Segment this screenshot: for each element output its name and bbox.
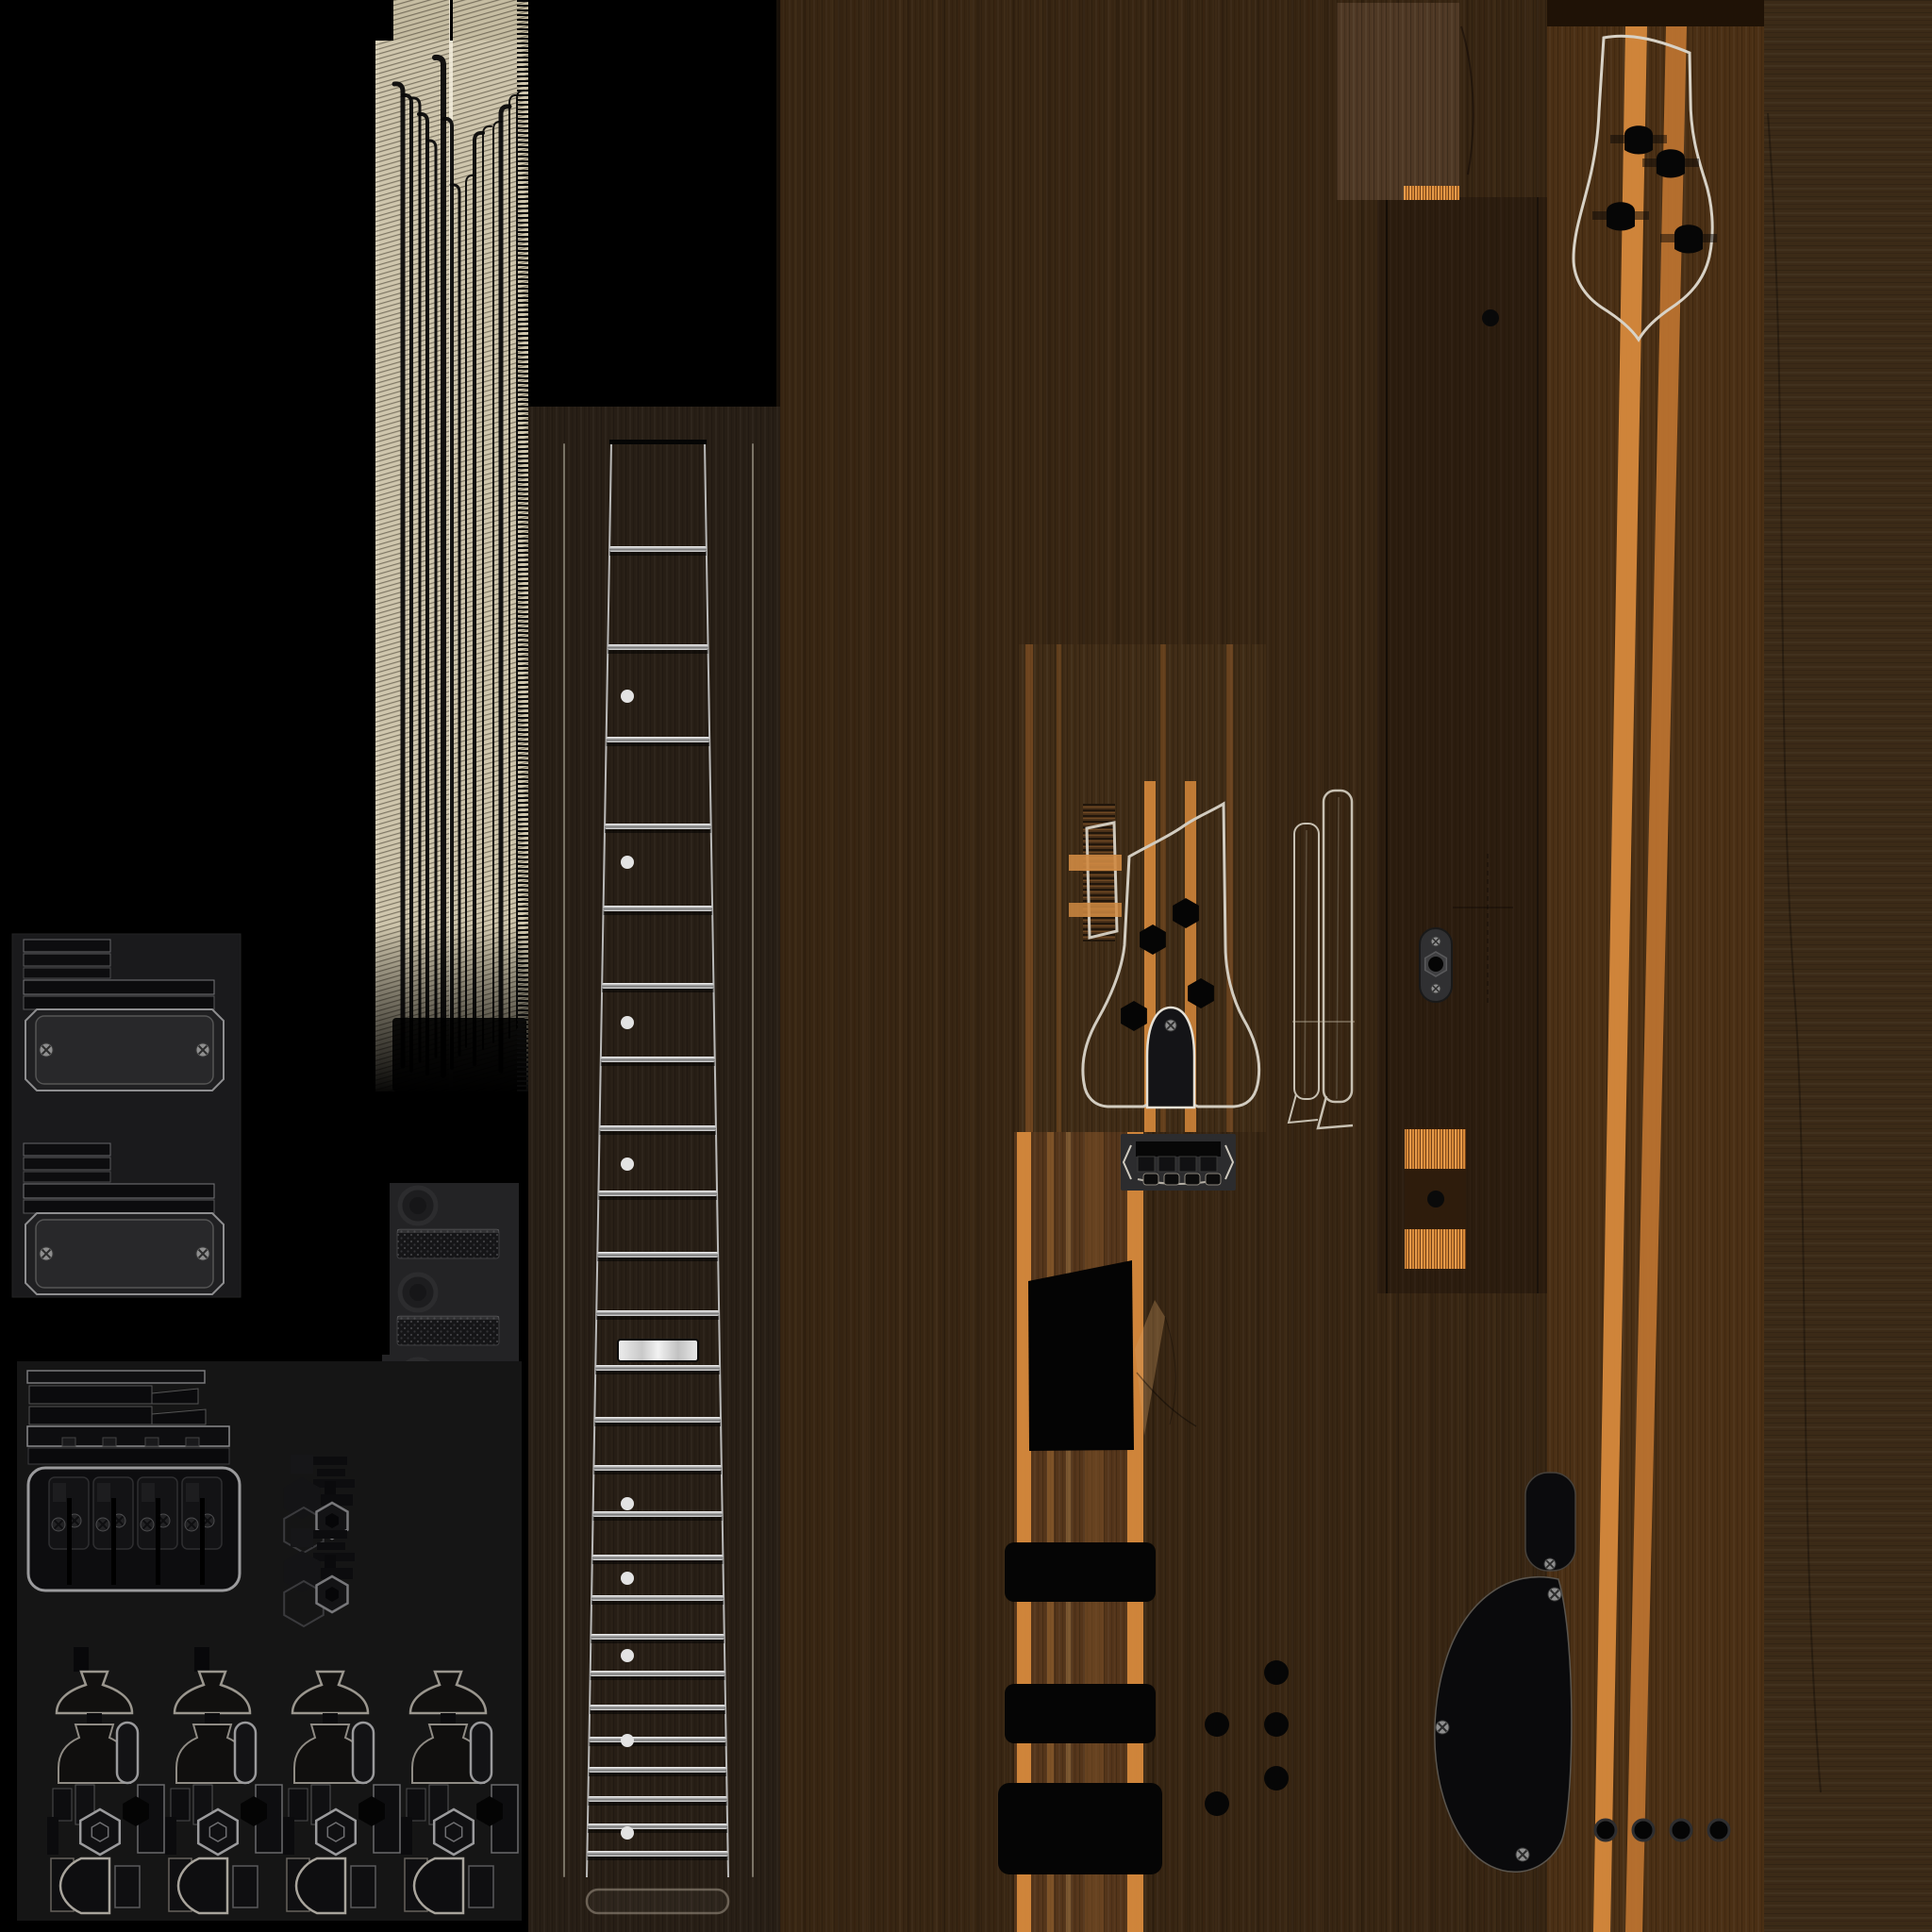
tuner-bit [469, 1866, 493, 1907]
bridge-bar [1136, 1141, 1221, 1157]
bridge-plate-notches [186, 1438, 199, 1446]
pickup-plate-bar [24, 954, 110, 966]
front-panel-streak [1025, 644, 1033, 1132]
fretboard-nut [609, 440, 707, 444]
truss-cover-screw [1165, 1020, 1176, 1031]
tuner-gear-housing [60, 1858, 109, 1913]
top-panel-orange-block [1404, 186, 1459, 200]
fret [608, 644, 708, 650]
saddle-screw [185, 1518, 198, 1531]
top-panel-grain [1337, 3, 1459, 200]
hardware-panel-bottom-edge [17, 1921, 522, 1932]
texture-atlas-canvas [0, 0, 1932, 1932]
bridge-saddle [1158, 1157, 1175, 1172]
bridge-string-slots [67, 1498, 72, 1585]
knob-hole [1264, 1660, 1289, 1685]
knob-hole-group [1205, 1791, 1229, 1816]
fretboard-side-line-right [752, 443, 754, 1877]
bridge-saddle [1179, 1157, 1196, 1172]
pickup-plate-bar-wide [24, 980, 214, 994]
inlay-dots [621, 690, 634, 703]
hardware-bit [291, 1528, 313, 1547]
pickup-plate-bar-wide [24, 1200, 214, 1213]
saddle-spring [142, 1483, 155, 1502]
tuner-bit [47, 1817, 58, 1855]
fret [605, 824, 711, 829]
inlay-dots [621, 1826, 634, 1840]
hardware-bit [313, 1457, 347, 1465]
bridge-foot [1206, 1174, 1221, 1185]
tuner-bit [351, 1866, 375, 1907]
jack-plate-screw-bottom [1431, 984, 1441, 993]
orange-bar [1069, 903, 1122, 917]
bridge-post [74, 1647, 89, 1672]
bridge-plate-notch [186, 1438, 199, 1446]
fret [598, 1191, 717, 1196]
cavity-screw [1516, 1848, 1529, 1861]
hardware-bit [321, 1494, 353, 1506]
knob-knurl-highlight [397, 1316, 499, 1320]
bridge-plate-notches [103, 1438, 116, 1446]
string-ferrule [1633, 1820, 1654, 1840]
strings-black-line-top [450, 0, 453, 41]
inlay-dot [621, 1734, 634, 1747]
tuner-hex-nut [80, 1809, 120, 1855]
fret [592, 1555, 724, 1560]
pickup-screw-left [40, 1043, 53, 1057]
fret [597, 1252, 718, 1257]
battery-cover-screw [1544, 1558, 1556, 1570]
pickup-plate-bar [24, 1172, 110, 1182]
bridge-saddle [1200, 1157, 1217, 1172]
pickup-plate-bar [24, 940, 110, 952]
knob-knurl-highlight [397, 1229, 499, 1233]
bridge-drawing-bar [27, 1371, 205, 1383]
tuner-bit [401, 1817, 412, 1855]
bridge-drawing-bar [29, 1407, 152, 1424]
tuner-gear-housing [296, 1858, 345, 1913]
bridge-saddle [1138, 1157, 1155, 1172]
cavity-screw [1436, 1721, 1449, 1734]
inlay-dots [621, 1572, 634, 1585]
saddle-screw [141, 1518, 154, 1531]
right-wood-grain [1757, 0, 1932, 1932]
inlay-dots [621, 1016, 634, 1029]
atlas-graphics [12, 0, 1932, 1932]
fret [589, 1767, 726, 1773]
strings-bottom-blob [392, 1018, 526, 1091]
fret [589, 1737, 725, 1742]
fret [600, 1125, 716, 1131]
pickup-plate-bar-wide [24, 1184, 214, 1198]
bridge-string-slots [200, 1498, 205, 1585]
tuner-bit [171, 1789, 190, 1821]
bridge-post [194, 1647, 209, 1672]
knob-hole [1205, 1712, 1229, 1737]
front-panel-streak [1226, 644, 1233, 1132]
fret [588, 1824, 727, 1829]
inlay-dots [621, 1649, 634, 1662]
pickup-plate-bar-wide [24, 996, 214, 1009]
hardware-bit [313, 1530, 347, 1539]
knob-hole-group [1264, 1766, 1289, 1790]
tuner-button [1624, 125, 1653, 154]
fret [591, 1671, 725, 1676]
pickup-screw-right [196, 1247, 209, 1260]
pickup-screw-left [40, 1247, 53, 1260]
ferrule-row [1633, 1820, 1654, 1840]
tuner-bit [53, 1789, 72, 1821]
jack-plate-screw-top [1431, 937, 1441, 946]
fret [593, 1511, 723, 1517]
inlay-dot [621, 1016, 634, 1029]
bridge-string-slot [67, 1498, 72, 1585]
knob-knurl-bar [397, 1316, 499, 1345]
pickup-plate-bar [24, 968, 110, 978]
tuner-capstan [117, 1723, 138, 1783]
bridge-plate-notches [62, 1438, 75, 1446]
bridge-plate-notch [145, 1438, 158, 1446]
jack-hole [1428, 957, 1443, 972]
inlay-dot [621, 690, 634, 703]
fret [596, 1310, 719, 1316]
string-ferrule [1708, 1820, 1729, 1840]
tuner-gear-housing [414, 1858, 463, 1913]
small-laminate-top-block [1405, 1129, 1466, 1169]
inlay-dot [621, 856, 634, 869]
inlay-dot [621, 1826, 634, 1840]
knob-hole [1264, 1766, 1289, 1790]
saddle-spring [97, 1483, 110, 1502]
orange-bar [1069, 855, 1122, 871]
bridge-string-slot [156, 1498, 160, 1585]
knob-hole [1205, 1791, 1229, 1816]
tuner-stem [205, 1713, 220, 1724]
small-laminate-bottom-block [1405, 1229, 1466, 1269]
pickup-plate-bar [24, 1158, 110, 1170]
inlay-dots [621, 1734, 634, 1747]
string-ferrule [1671, 1820, 1691, 1840]
tuner-stem [323, 1713, 338, 1724]
inlay-dots [621, 856, 634, 869]
inlay-dot [621, 1497, 634, 1510]
fretboard-grain [528, 407, 780, 1932]
tuner-capstan [235, 1723, 256, 1783]
inlay-dot [621, 1649, 634, 1662]
knob-hole [1264, 1712, 1289, 1737]
knob-hole-group [1205, 1712, 1229, 1737]
knob-hole-group [1264, 1712, 1289, 1737]
laminate-top-dark-band [1547, 0, 1764, 26]
knob-top-inner [409, 1284, 426, 1301]
bridge-foot [1185, 1174, 1200, 1185]
hardware-bit [321, 1568, 353, 1579]
tuner-bit [289, 1789, 308, 1821]
bridge-drawing-bar [28, 1448, 229, 1464]
fret [607, 737, 710, 742]
knob-hole-group [1264, 1660, 1289, 1685]
fret [590, 1705, 725, 1710]
tuner-bit [233, 1866, 258, 1907]
ferrule-row [1708, 1820, 1729, 1840]
tuner-hex-nut [198, 1809, 238, 1855]
tuner-bit [407, 1789, 425, 1821]
tuner-capstan [353, 1723, 374, 1783]
inlay-dot [621, 1572, 634, 1585]
pickup-cover-inner [36, 1016, 213, 1084]
tuner-button [1657, 149, 1685, 177]
strings-hatch-top [393, 0, 528, 41]
fret [609, 546, 707, 552]
string-ferrule [1595, 1820, 1616, 1840]
tuner-stem [441, 1713, 456, 1724]
pickup-screw-right [196, 1043, 209, 1057]
fretboard-side-line-left [563, 443, 565, 1877]
lone-dot [1482, 309, 1499, 326]
bridge-plate-notch [62, 1438, 75, 1446]
knob-top-inner [409, 1197, 426, 1214]
bridge-string-slot [111, 1498, 116, 1585]
fret [591, 1634, 724, 1640]
saddle-screw [96, 1518, 109, 1531]
cavity-screw [1548, 1588, 1561, 1601]
hardware-bit [317, 1542, 345, 1550]
pickup-route-blank [1005, 1684, 1156, 1743]
tuner-bit [115, 1866, 140, 1907]
hardware-bit [291, 1455, 313, 1474]
fret [602, 983, 713, 989]
ferrule-row [1671, 1820, 1691, 1840]
pickup-route-blank [1005, 1542, 1156, 1602]
fret [588, 1796, 726, 1802]
pickup-plate-bar [24, 1143, 110, 1156]
small-panel-hole [1427, 1191, 1444, 1207]
fretboard-end-tab [587, 1890, 728, 1913]
tuner-button [1607, 202, 1635, 230]
inlay-dot [621, 1158, 634, 1171]
bridge-foot [1143, 1174, 1158, 1185]
saddle-spring [53, 1483, 66, 1502]
ferrule-row [1595, 1820, 1616, 1840]
tuner-bit [283, 1817, 294, 1855]
fret [601, 1057, 715, 1062]
pickup-cover-inner [36, 1220, 213, 1288]
battery-cover [1525, 1473, 1575, 1571]
texture-atlas-scene [0, 0, 1932, 1932]
bridge-foot [1164, 1174, 1179, 1185]
saddle-screw [52, 1518, 65, 1531]
bridge-string-slots [111, 1498, 116, 1585]
tuner-hex-nut [434, 1809, 474, 1855]
fret [604, 906, 713, 911]
tuner-capstan [471, 1723, 491, 1783]
hardware-bit [317, 1469, 345, 1476]
pickup-route-blank [998, 1783, 1162, 1874]
saddle-spring [186, 1483, 199, 1502]
inlay-block [618, 1340, 698, 1361]
inlay-dots [621, 1497, 634, 1510]
front-panel-streak [1057, 644, 1061, 1132]
black-route-blank-quad [1028, 1260, 1134, 1451]
tuner-bit [165, 1817, 176, 1855]
bridge-string-slots [156, 1498, 160, 1585]
strings-serrated-edge [517, 0, 528, 1091]
bridge-plate-notches [145, 1438, 158, 1446]
fret [587, 1851, 727, 1857]
tuner-hex-nut [316, 1809, 356, 1855]
bridge-string-slot [200, 1498, 205, 1585]
knob-knurl-bar [397, 1229, 499, 1258]
fret [595, 1365, 720, 1371]
tuner-button [1674, 225, 1703, 253]
tuner-stem [87, 1713, 102, 1724]
tuner-gear-housing [178, 1858, 227, 1913]
inlay-dots [621, 1158, 634, 1171]
bridge-plate-notch [103, 1438, 116, 1446]
fret [594, 1417, 721, 1423]
fret [591, 1595, 724, 1601]
bridge-drawing-bar [29, 1386, 152, 1404]
fret [593, 1465, 721, 1471]
